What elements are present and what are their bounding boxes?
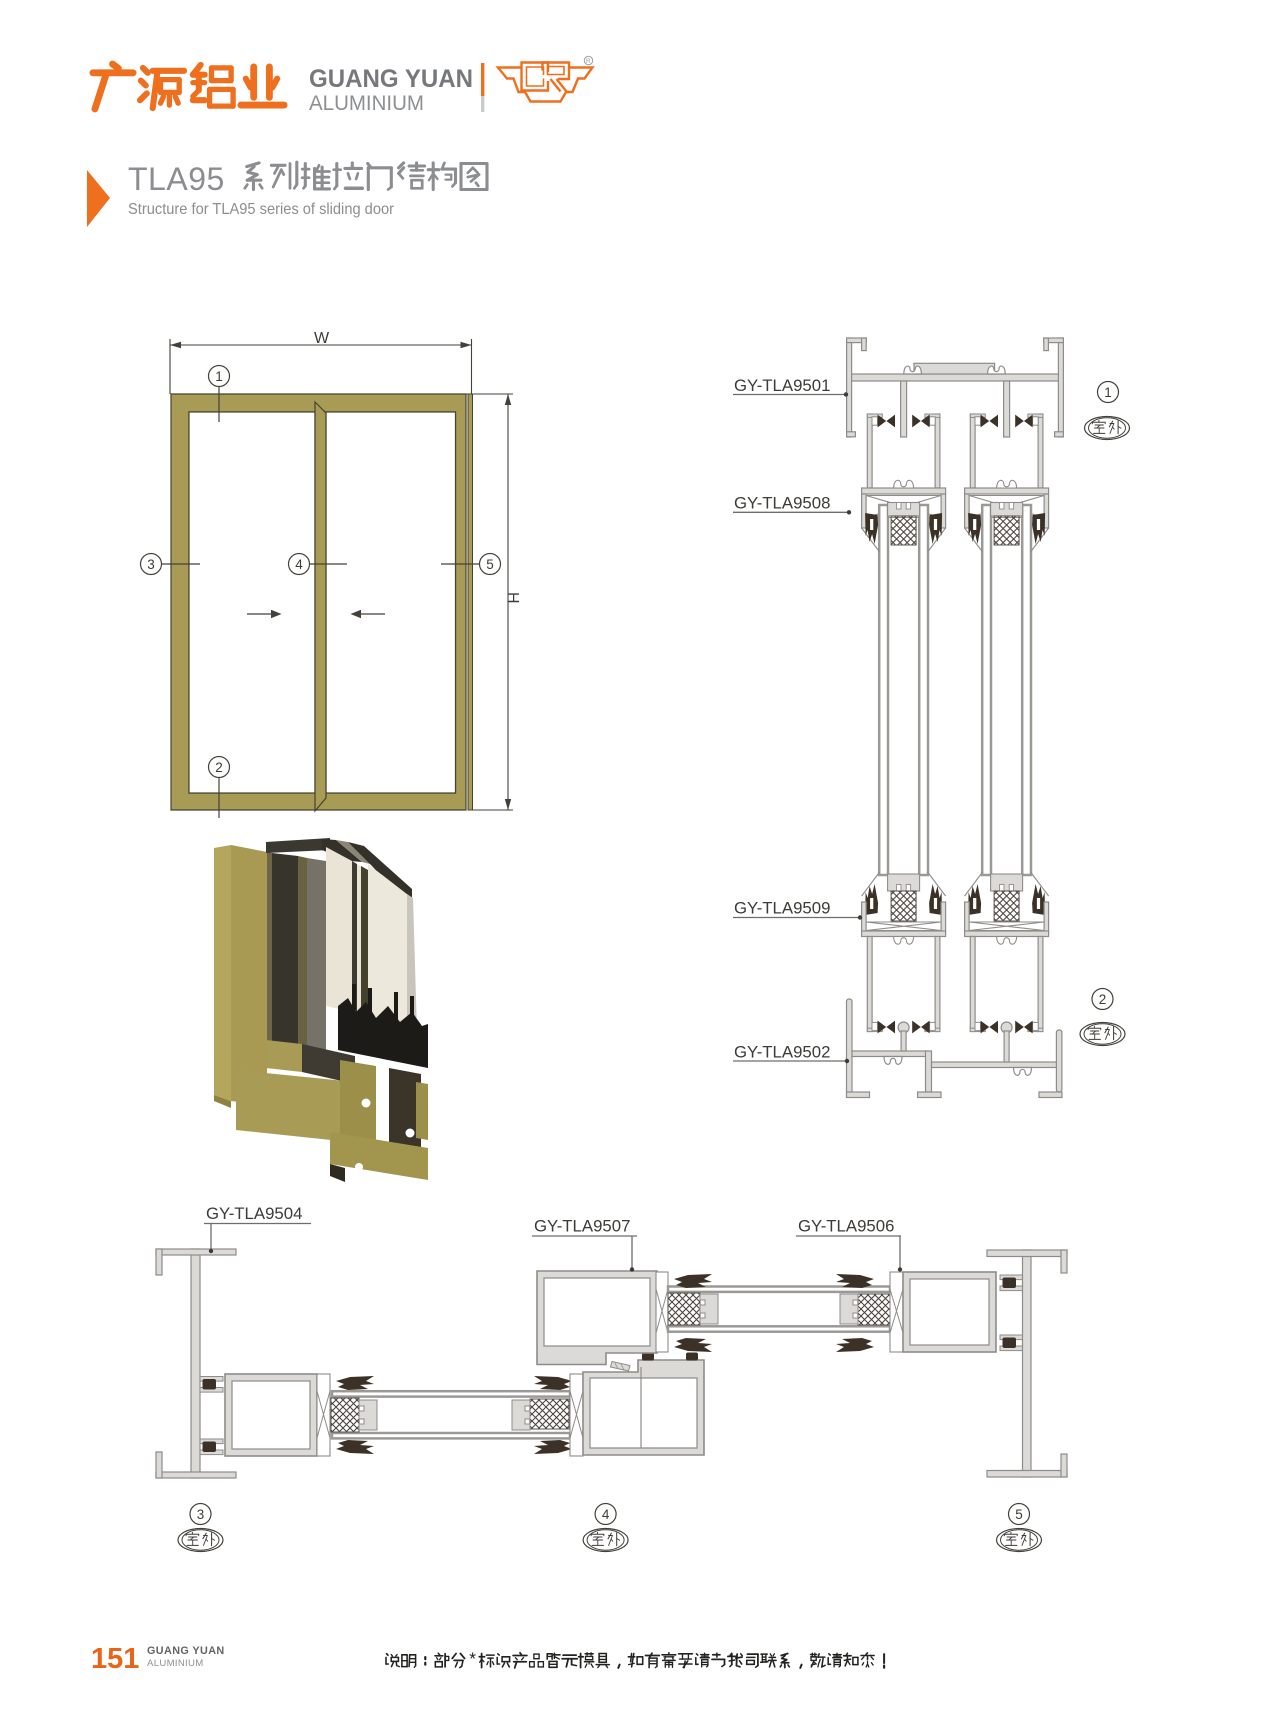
svg-text:Structure for TLA95 series of: Structure for TLA95 series of sliding do… <box>128 201 395 218</box>
svg-text:GUANG YUAN: GUANG YUAN <box>309 65 473 93</box>
svg-text:3: 3 <box>147 557 155 572</box>
svg-text:GY-TLA9502: GY-TLA9502 <box>734 1043 830 1062</box>
svg-text:151: 151 <box>91 1643 139 1675</box>
svg-text:W: W <box>314 330 330 347</box>
svg-text:4: 4 <box>602 1507 610 1522</box>
svg-text:1: 1 <box>215 369 223 384</box>
svg-text:2: 2 <box>215 760 223 775</box>
svg-text:2: 2 <box>1099 992 1107 1007</box>
svg-text:TLA95: TLA95 <box>128 161 225 197</box>
svg-text:GY-TLA9509: GY-TLA9509 <box>734 899 830 918</box>
svg-text:3: 3 <box>197 1507 205 1522</box>
svg-text:ALUMINIUM: ALUMINIUM <box>147 1658 204 1669</box>
svg-text:1: 1 <box>1104 385 1112 400</box>
svg-text:4: 4 <box>295 557 303 572</box>
svg-text:5: 5 <box>1015 1507 1023 1522</box>
svg-text:GY-TLA9501: GY-TLA9501 <box>734 376 830 395</box>
svg-text:H: H <box>504 592 521 604</box>
svg-text:5: 5 <box>486 557 494 572</box>
svg-text:R: R <box>586 58 591 65</box>
svg-text:GUANG YUAN: GUANG YUAN <box>147 1645 225 1657</box>
svg-text:GY-TLA9504: GY-TLA9504 <box>206 1204 302 1223</box>
svg-text:*: * <box>469 1648 476 1668</box>
svg-text:GY-TLA9506: GY-TLA9506 <box>798 1217 894 1236</box>
svg-text:GY-TLA9507: GY-TLA9507 <box>534 1217 630 1236</box>
svg-text:ALUMINIUM: ALUMINIUM <box>309 92 424 115</box>
svg-text:GY-TLA9508: GY-TLA9508 <box>734 494 830 513</box>
